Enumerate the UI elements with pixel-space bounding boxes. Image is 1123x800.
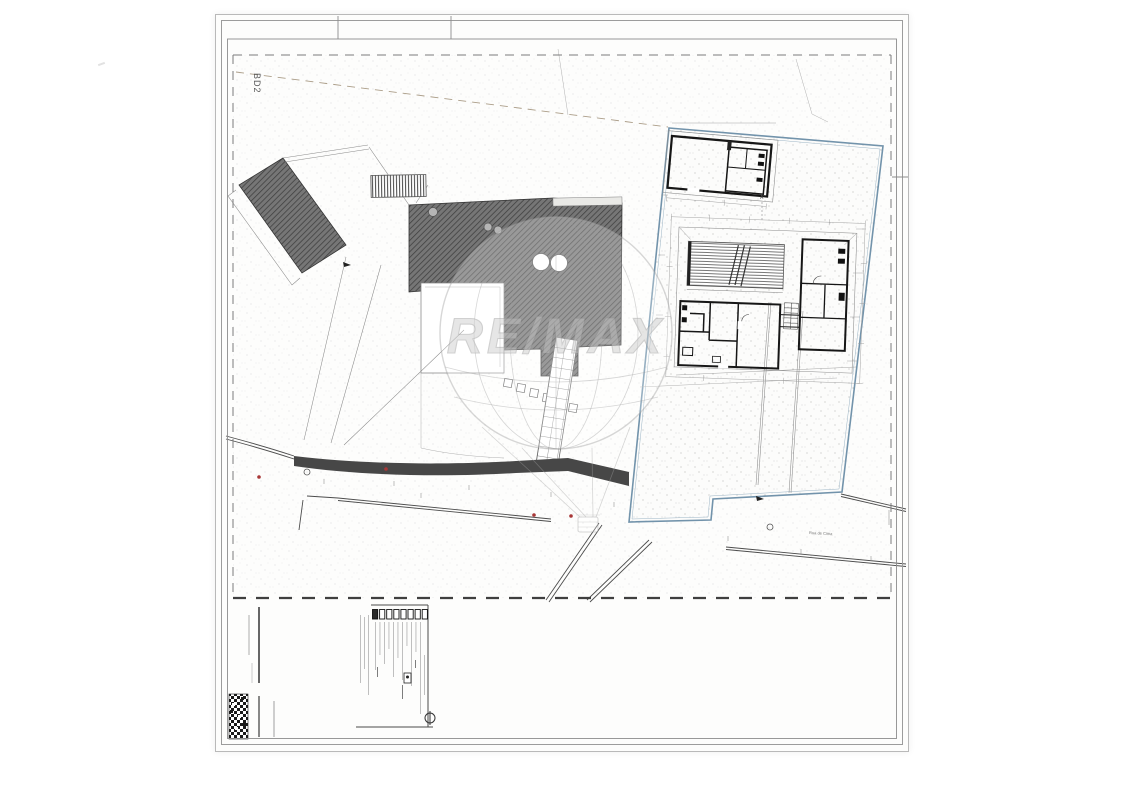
stamp-box xyxy=(380,610,385,620)
roof-upper-band xyxy=(553,197,622,206)
site-plan-drawing: A xyxy=(216,15,908,751)
stamp-box xyxy=(408,610,413,620)
stamp-box xyxy=(373,610,378,620)
drawing-sheet: A xyxy=(215,14,909,752)
plan-area-label: BD2 xyxy=(252,73,262,94)
north-arrow-icon xyxy=(425,711,435,725)
title-block xyxy=(229,605,435,739)
stamp-box xyxy=(401,610,406,620)
stamp-box xyxy=(415,610,420,620)
balloon-basket-icon xyxy=(576,515,600,532)
watermark-brand-text: RE/MAX xyxy=(447,308,665,364)
title-info-box xyxy=(356,605,435,727)
scan-speck xyxy=(98,62,105,66)
qr-code xyxy=(229,694,248,739)
stamp-row xyxy=(373,610,428,620)
stamp-box xyxy=(394,610,399,620)
stamp-box xyxy=(387,610,392,620)
stamp-box xyxy=(422,610,427,620)
scanned-page: A xyxy=(0,0,1123,800)
titleblock-text-columns xyxy=(360,615,425,714)
scale-lines xyxy=(249,607,274,737)
pergola-strip xyxy=(371,175,426,198)
